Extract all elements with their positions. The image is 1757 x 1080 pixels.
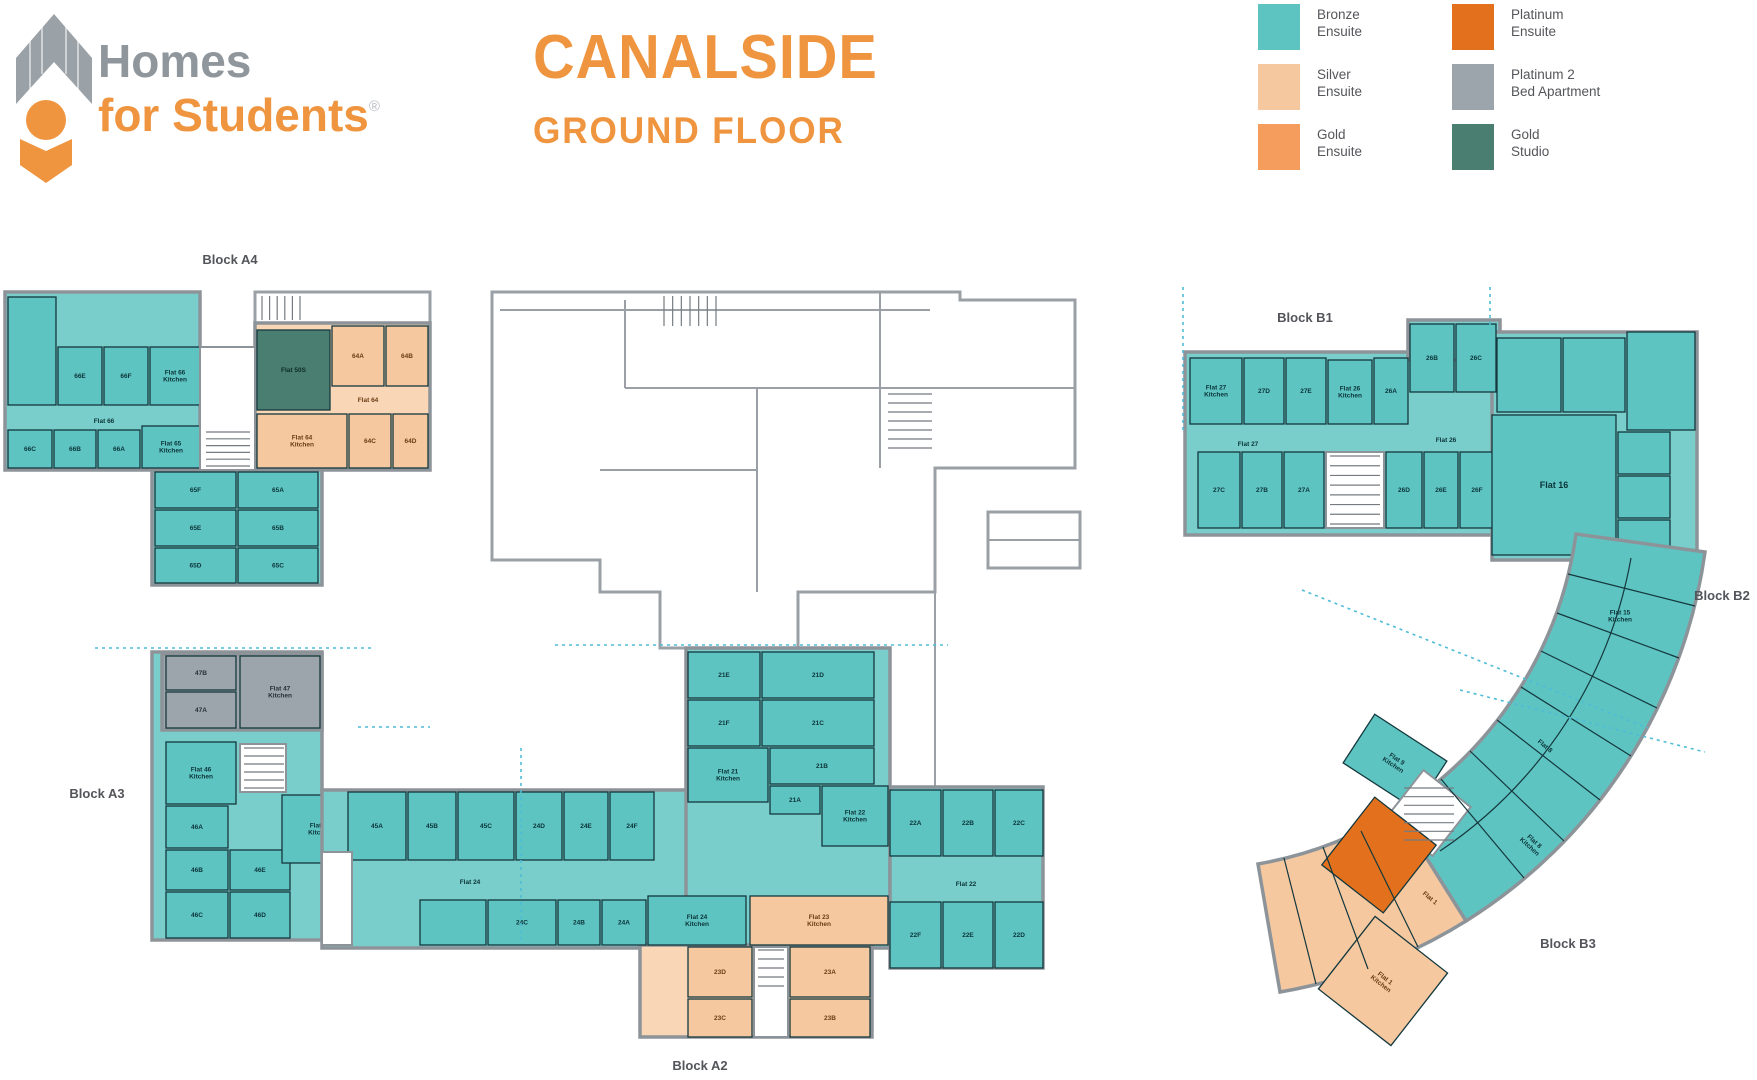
room-label: Flat 64 xyxy=(358,397,379,404)
room-label: 24F xyxy=(626,823,637,830)
room-label: 45C xyxy=(480,823,492,830)
room-label: 23A xyxy=(824,969,836,976)
room-label: 45A xyxy=(371,823,383,830)
stairwell xyxy=(240,744,286,792)
room-label: 65C xyxy=(272,562,284,569)
room xyxy=(1627,332,1695,430)
room-label: 27A xyxy=(1298,487,1310,494)
room-label: Flat 46Kitchen xyxy=(189,766,213,780)
room xyxy=(420,900,486,945)
block-label-a2: Block A2 xyxy=(672,1058,727,1073)
block-label-a4: Block A4 xyxy=(202,252,258,267)
room-label: Flat 22Kitchen xyxy=(843,809,867,823)
room-label: Flat 24Kitchen xyxy=(685,913,709,927)
room-label: 47B xyxy=(195,670,207,677)
room-label: 24D xyxy=(533,823,545,830)
room xyxy=(1497,338,1561,412)
floor-plan: 66E66FFlat 66KitchenFlat 6666C66B66AFlat… xyxy=(0,0,1757,1080)
room-label: 46D xyxy=(254,912,266,919)
room-label: Flat 64Kitchen xyxy=(290,434,314,448)
room-label: Flat 24 xyxy=(460,879,481,886)
room-label: 26A xyxy=(1385,388,1397,395)
room-label: Flat 15Kitchen xyxy=(1608,609,1632,623)
room-label: 24B xyxy=(573,919,585,926)
floorplan-page: Homes for Students® CANALSIDE GROUND FLO… xyxy=(0,0,1757,1080)
room-label: Flat 27Kitchen xyxy=(1204,384,1228,398)
room-label: 24C xyxy=(516,919,528,926)
room-label: 65D xyxy=(190,562,202,569)
room-label: 46E xyxy=(254,867,266,874)
room-label: 45B xyxy=(426,823,438,830)
room xyxy=(1618,432,1670,474)
room-label: Flat 26 xyxy=(1436,437,1457,444)
room-label: 65E xyxy=(190,525,202,532)
block-label-b2: Block B2 xyxy=(1694,588,1750,603)
room-label: 27C xyxy=(1213,487,1225,494)
block-b1: Flat 27Kitchen27D27EFlat 26Kitchen26A26B… xyxy=(1185,310,1697,560)
room-label: 64C xyxy=(364,438,376,445)
block-label-a3: Block A3 xyxy=(69,786,124,801)
room-label: 26F xyxy=(1471,487,1482,494)
room-label: 66C xyxy=(24,446,36,453)
room-label: 64A xyxy=(352,353,364,360)
room-label: 66B xyxy=(69,446,81,453)
room-label: 21D xyxy=(812,672,824,679)
room-label: 65B xyxy=(272,525,284,532)
room-label: Flat 66Kitchen xyxy=(163,369,187,383)
room-label: Flat 66 xyxy=(94,418,115,425)
room xyxy=(1397,534,1705,921)
room-label: 64B xyxy=(401,353,413,360)
room-label: 23D xyxy=(714,969,726,976)
room-label: 27D xyxy=(1258,388,1270,395)
room-label: 26D xyxy=(1398,487,1410,494)
room-label: 47A xyxy=(195,707,207,714)
room-label: 26B xyxy=(1426,355,1438,362)
room-label: 21C xyxy=(812,720,824,727)
room xyxy=(8,297,56,405)
room-label: 65A xyxy=(272,487,284,494)
room-label: 22B xyxy=(962,820,974,827)
room-label: Flat 23Kitchen xyxy=(807,913,831,927)
block-a3: 47B47AFlat 47KitchenFlat 46Kitchen46A46B… xyxy=(69,652,358,940)
room-label: Flat 21Kitchen xyxy=(716,768,740,782)
room-label: 65F xyxy=(190,487,201,494)
room-label: 66E xyxy=(74,373,86,380)
stairwell xyxy=(754,947,788,1037)
room-label: 27B xyxy=(1256,487,1268,494)
room-label: 24A xyxy=(618,919,630,926)
room-label: 66F xyxy=(120,373,131,380)
room-label: 66A xyxy=(113,446,125,453)
block-label-b3: Block B3 xyxy=(1540,936,1596,951)
stairwell xyxy=(200,347,255,470)
room-label: 22E xyxy=(962,932,974,939)
room-label: 46C xyxy=(191,912,203,919)
stairwell xyxy=(1326,452,1384,528)
room-label: 22D xyxy=(1013,932,1025,939)
room-label: Flat 22 xyxy=(956,881,977,888)
room-label: Flat 50S xyxy=(281,367,307,374)
room-label: Flat 47Kitchen xyxy=(268,685,292,699)
room-label: 26C xyxy=(1470,355,1482,362)
room-label: 21F xyxy=(718,720,729,727)
room-label: 46A xyxy=(191,824,203,831)
room-label: 21A xyxy=(789,797,801,804)
room xyxy=(1563,338,1625,412)
room-label: 23B xyxy=(824,1015,836,1022)
room-label: 24E xyxy=(580,823,592,830)
stairwell xyxy=(322,852,352,945)
room-label: 46B xyxy=(191,867,203,874)
room-label: Flat 27 xyxy=(1238,441,1259,448)
room-label: Flat 16 xyxy=(1540,480,1569,490)
room xyxy=(1618,476,1670,518)
room-label: 21B xyxy=(816,763,828,770)
room-label: 64D xyxy=(405,438,417,445)
room-label: 21E xyxy=(718,672,730,679)
room-label: 22C xyxy=(1013,820,1025,827)
room-label: 22F xyxy=(910,932,921,939)
room-label: Flat 65Kitchen xyxy=(159,440,183,454)
room-label: 27E xyxy=(1300,388,1312,395)
block-label-b1: Block B1 xyxy=(1277,310,1333,325)
room-label: 22A xyxy=(910,820,922,827)
room-label: Flat 26Kitchen xyxy=(1338,385,1362,399)
room-label: 23C xyxy=(714,1015,726,1022)
room-label: 26E xyxy=(1435,487,1447,494)
